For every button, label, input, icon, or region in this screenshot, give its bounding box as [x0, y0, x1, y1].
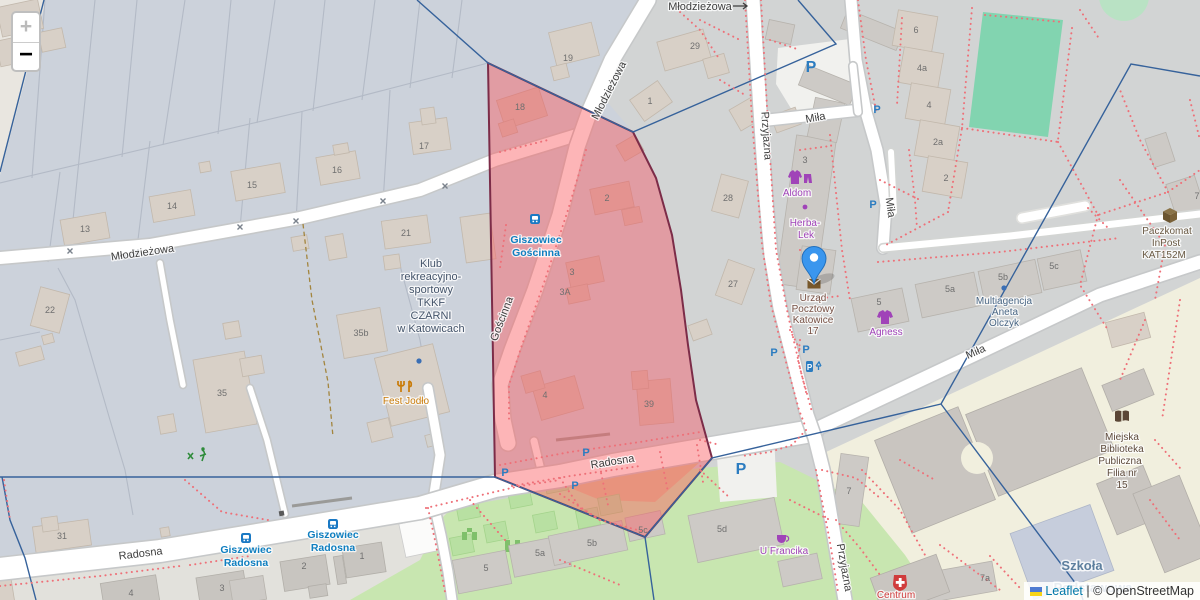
svg-text:6: 6 [913, 25, 918, 35]
svg-text:P: P [582, 447, 589, 459]
svg-text:Radosna: Radosna [224, 557, 269, 569]
svg-text:39: 39 [644, 399, 654, 409]
svg-text:Pocztowy: Pocztowy [792, 304, 835, 315]
svg-text:Biblioteka: Biblioteka [1100, 444, 1144, 455]
svg-text:CZARNI: CZARNI [411, 310, 452, 322]
svg-text:P: P [802, 344, 809, 356]
svg-text:4: 4 [926, 100, 931, 110]
svg-text:5: 5 [876, 297, 881, 307]
svg-text:18: 18 [515, 102, 525, 112]
svg-text:P: P [571, 480, 578, 492]
svg-text:17: 17 [419, 141, 429, 151]
svg-text:5: 5 [483, 563, 488, 573]
svg-text:22: 22 [45, 305, 55, 315]
svg-text:Multiagencja: Multiagencja [976, 296, 1033, 307]
svg-text:Aldom: Aldom [783, 188, 811, 199]
svg-text:5d: 5d [717, 524, 727, 534]
svg-text:2a: 2a [933, 137, 943, 147]
svg-text:Młodzieżowa: Młodzieżowa [668, 1, 732, 13]
svg-text:U Francika: U Francika [760, 546, 809, 557]
svg-text:16: 16 [332, 165, 342, 175]
svg-text:35b: 35b [353, 328, 368, 338]
svg-text:Aneta: Aneta [992, 307, 1019, 318]
svg-text:15: 15 [1116, 480, 1128, 491]
svg-text:Radosna: Radosna [311, 542, 356, 554]
svg-text:Centrum: Centrum [877, 590, 915, 600]
svg-text:Miejska: Miejska [1105, 432, 1139, 443]
svg-text:P: P [807, 363, 813, 372]
svg-text:2: 2 [301, 561, 306, 571]
svg-text:P: P [736, 461, 747, 478]
svg-text:17: 17 [807, 326, 819, 337]
svg-text:3A: 3A [559, 287, 570, 297]
svg-text:35: 35 [217, 388, 227, 398]
svg-text:Gościnna: Gościnna [512, 247, 560, 259]
svg-text:5b: 5b [587, 538, 597, 548]
svg-text:TKKF: TKKF [417, 297, 445, 309]
svg-text:4: 4 [128, 588, 133, 598]
svg-text:5a: 5a [535, 548, 545, 558]
svg-text:InPost: InPost [1152, 238, 1181, 249]
svg-text:28: 28 [723, 193, 733, 203]
svg-text:4: 4 [542, 390, 547, 400]
svg-text:3: 3 [569, 267, 574, 277]
svg-text:5b: 5b [998, 272, 1008, 282]
svg-text:sportowy: sportowy [409, 284, 454, 296]
svg-text:5c: 5c [638, 525, 648, 535]
svg-text:P: P [501, 467, 508, 479]
svg-text:Herba-: Herba- [790, 218, 821, 229]
svg-text:Filia nr: Filia nr [1107, 468, 1138, 479]
svg-text:13: 13 [80, 224, 90, 234]
svg-text:Giszowiec: Giszowiec [510, 234, 562, 246]
svg-text:KAT152M: KAT152M [1142, 250, 1186, 261]
svg-text:Szkoła: Szkoła [1061, 558, 1103, 573]
svg-text:rekreacyjno-: rekreacyjno- [401, 271, 462, 283]
svg-text:P: P [869, 199, 876, 211]
svg-text:Klub: Klub [420, 258, 442, 270]
svg-text:Publiczna: Publiczna [1098, 456, 1142, 467]
svg-text:27: 27 [728, 279, 738, 289]
svg-text:Paczkomat: Paczkomat [1142, 226, 1192, 237]
svg-text:Giszowiec: Giszowiec [307, 529, 359, 541]
svg-text:1: 1 [647, 96, 652, 106]
svg-text:Fest Jodło: Fest Jodło [383, 396, 430, 407]
svg-text:14: 14 [167, 201, 177, 211]
svg-text:15: 15 [247, 180, 257, 190]
svg-text:4a: 4a [917, 63, 927, 73]
svg-text:Lek: Lek [798, 230, 815, 241]
svg-text:Agness: Agness [869, 327, 902, 338]
svg-text:P: P [873, 104, 880, 116]
svg-text:Urząd: Urząd [800, 293, 827, 304]
svg-text:P: P [770, 347, 777, 359]
svg-text:Giszowiec: Giszowiec [220, 544, 272, 556]
svg-text:2: 2 [943, 173, 948, 183]
svg-text:31: 31 [57, 531, 67, 541]
svg-text:w Katowicach: w Katowicach [396, 323, 464, 335]
svg-text:21: 21 [401, 228, 411, 238]
svg-text:5a: 5a [945, 284, 955, 294]
svg-text:P: P [806, 59, 817, 76]
svg-text:3: 3 [802, 155, 807, 165]
svg-text:29: 29 [690, 41, 700, 51]
svg-text:5c: 5c [1049, 261, 1059, 271]
svg-text:19: 19 [563, 53, 573, 63]
svg-text:7: 7 [846, 486, 851, 496]
svg-text:Katowice: Katowice [793, 315, 834, 326]
svg-text:2: 2 [604, 193, 609, 203]
svg-text:1: 1 [359, 551, 364, 561]
svg-text:7a: 7a [980, 573, 990, 583]
svg-text:Olczyk: Olczyk [989, 318, 1020, 329]
svg-text:7: 7 [1194, 191, 1199, 201]
svg-text:3: 3 [219, 583, 224, 593]
